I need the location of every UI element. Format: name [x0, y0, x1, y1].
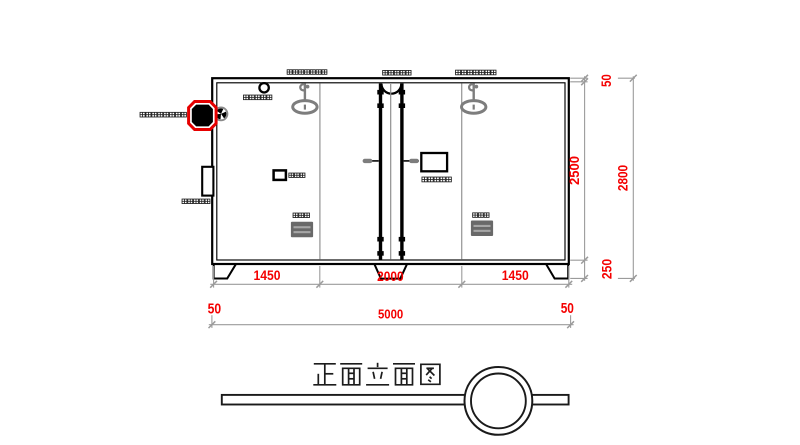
svg-text:50: 50	[561, 301, 574, 317]
svg-text:2000: 2000	[377, 268, 404, 284]
svg-text:2500: 2500	[567, 156, 582, 185]
svg-text:5000: 5000	[378, 307, 403, 322]
svg-text:1450: 1450	[502, 267, 529, 283]
svg-text:50: 50	[598, 74, 614, 87]
svg-text:50: 50	[208, 301, 222, 317]
svg-text:2800: 2800	[615, 165, 630, 191]
svg-text:250: 250	[598, 259, 614, 279]
svg-text:1450: 1450	[254, 267, 281, 283]
